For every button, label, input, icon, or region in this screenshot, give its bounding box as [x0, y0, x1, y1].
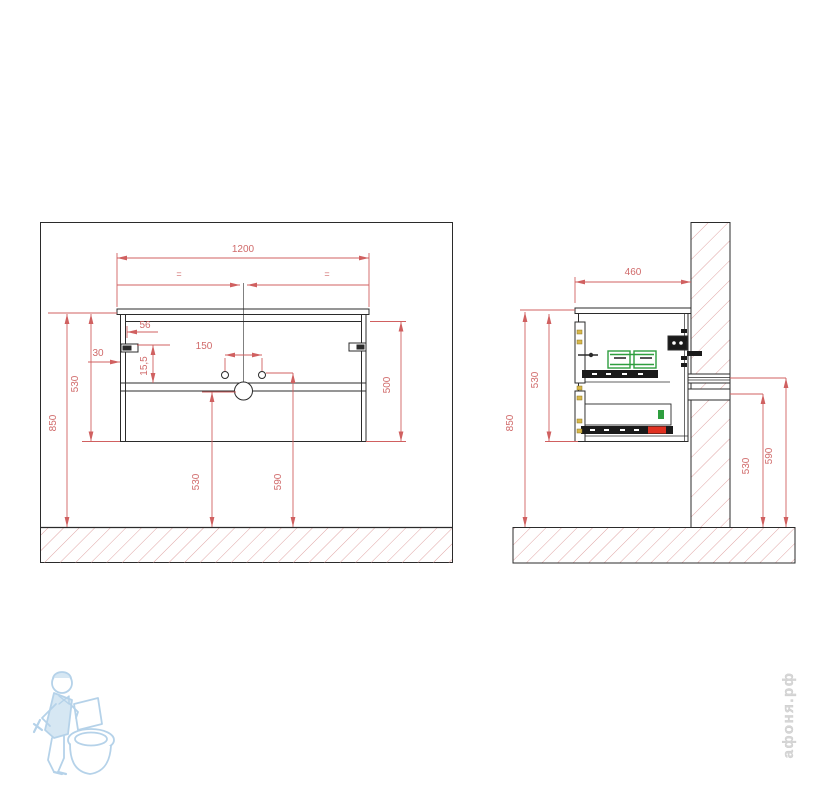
- drain-hole: [235, 382, 253, 400]
- dim-side-top-height: 850: [505, 414, 516, 431]
- dim-equal-right: =: [324, 269, 329, 279]
- plumber-hair: [53, 672, 71, 678]
- outlet-high: [686, 374, 730, 383]
- wrench: [34, 720, 42, 732]
- countertop-side: [575, 308, 691, 314]
- dim-equal-left: =: [176, 269, 181, 279]
- dim-wall-offset: 30: [92, 348, 104, 359]
- toilet-base: [70, 744, 111, 774]
- dim-bracket-drop: 15,5: [139, 356, 150, 376]
- faucet-hole-left: [222, 372, 229, 379]
- front-view: 1200 = = 56 30 150 15,5 530 850 500 530 …: [41, 223, 453, 563]
- dim-depth: 460: [625, 267, 642, 278]
- slide-clip-green: [658, 410, 664, 419]
- dim-front-body-height: 500: [382, 376, 393, 393]
- dim-hinge-offset: 56: [139, 320, 151, 331]
- dim-outlet-low-height: 530: [741, 457, 752, 474]
- floor-hatch: [41, 528, 452, 563]
- plumber-watermark-logo: [34, 672, 114, 774]
- dim-drain-height: 530: [191, 473, 202, 490]
- dim-front-width: 1200: [232, 244, 255, 255]
- dim-front-top-height: 850: [48, 414, 59, 431]
- floor-hatch-side: [513, 528, 795, 564]
- plumber-shoes: [54, 772, 66, 774]
- cabinet-front: [117, 309, 369, 442]
- mount-bracket-left: [121, 344, 138, 352]
- bracket-pin: [687, 351, 702, 356]
- outlet-low: [686, 389, 730, 400]
- faucet-hole-right: [259, 372, 266, 379]
- mount-bracket-right: [349, 343, 366, 351]
- dim-front-cabinet-height: 530: [70, 375, 81, 392]
- dim-faucet-height: 590: [273, 473, 284, 490]
- dim-faucet-spacing: 150: [196, 341, 213, 352]
- plumber-torso: [45, 693, 72, 738]
- dim-side-cabinet-height: 530: [530, 371, 541, 388]
- countertop: [117, 309, 369, 315]
- side-view: 460 530 850 530 590: [505, 223, 795, 564]
- pin-dot: [589, 353, 593, 357]
- dim-outlet-high-height: 590: [764, 447, 775, 464]
- plumber-legs: [48, 736, 64, 772]
- soft-close-red: [648, 427, 666, 434]
- drawing-page: 1200 = = 56 30 150 15,5 530 850 500 530 …: [0, 0, 815, 789]
- brand-watermark-text: афоня.рф: [780, 672, 797, 759]
- drawing-canvas: 1200 = = 56 30 150 15,5 530 850 500 530 …: [0, 0, 815, 789]
